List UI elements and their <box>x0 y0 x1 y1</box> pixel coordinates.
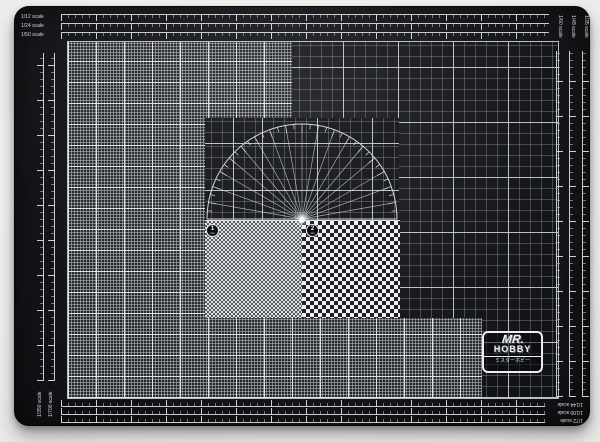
scale-label: 1/144 scale <box>547 400 583 407</box>
photo-background: 1/12 scale 1/24 scale 1/50 scale 1/35 sc… <box>0 0 600 442</box>
scale-label: 1/12 scale <box>21 14 61 21</box>
checkerboard-fine-1mm <box>205 220 302 318</box>
ruler-col-left-1: 1/350 scale <box>36 53 45 417</box>
brand-logo-japanese: ミスターホビー <box>484 356 541 365</box>
scale-label: 1/24 scale <box>21 23 61 30</box>
brand-logo-hobby: HOBBY <box>494 345 532 354</box>
ruler-ticks <box>61 400 545 407</box>
marker-2mm: 2 mm <box>306 224 319 237</box>
protractor-panel <box>205 118 399 220</box>
scale-label: 1/350 scale <box>37 381 44 417</box>
scale-label: 1/48 scale <box>569 15 576 51</box>
scale-label: 1/50 scale <box>21 32 61 39</box>
brand-logo-mr: MR. <box>501 334 524 345</box>
ruler-ticks <box>61 32 549 39</box>
ruler-row-top-1: 1/12 scale <box>21 14 549 23</box>
ruler-ticks <box>61 408 545 415</box>
scale-label: 1/100 scale <box>547 408 583 415</box>
ruler-ticks <box>61 416 545 423</box>
ruler-col-right-1: 1/35 scale <box>581 15 590 397</box>
ruler-row-top-2: 1/24 scale <box>21 23 549 32</box>
ruler-row-top-3: 1/50 scale <box>21 32 549 41</box>
ruler-ticks <box>48 53 55 381</box>
fine-grid-bottom <box>292 318 482 398</box>
cutting-mat: 1/12 scale 1/24 scale 1/50 scale 1/35 sc… <box>14 6 590 426</box>
ruler-col-right-2: 1/48 scale <box>568 15 577 397</box>
brand-logo: MR. HOBBY ミスターホビー <box>482 331 543 373</box>
protractor <box>205 118 399 220</box>
marker-unit: mm <box>210 232 215 235</box>
protractor-pivot-dot <box>299 217 305 223</box>
ruler-ticks <box>61 23 549 30</box>
scale-label: 1/72 scale <box>547 416 583 423</box>
ruler-ticks <box>582 51 589 397</box>
ruler-ticks <box>37 53 44 381</box>
scale-label: 1/35 scale <box>582 15 589 51</box>
marker-unit: mm <box>310 232 315 235</box>
ruler-ticks <box>569 51 576 397</box>
ruler-row-bottom-3: 1/72 scale <box>61 416 583 425</box>
scale-label: 1/700 scale <box>48 381 55 417</box>
ruler-ticks <box>61 14 549 21</box>
ruler-col-left-2: 1/700 scale <box>47 53 56 417</box>
marker-1mm: 1 mm <box>206 224 219 237</box>
